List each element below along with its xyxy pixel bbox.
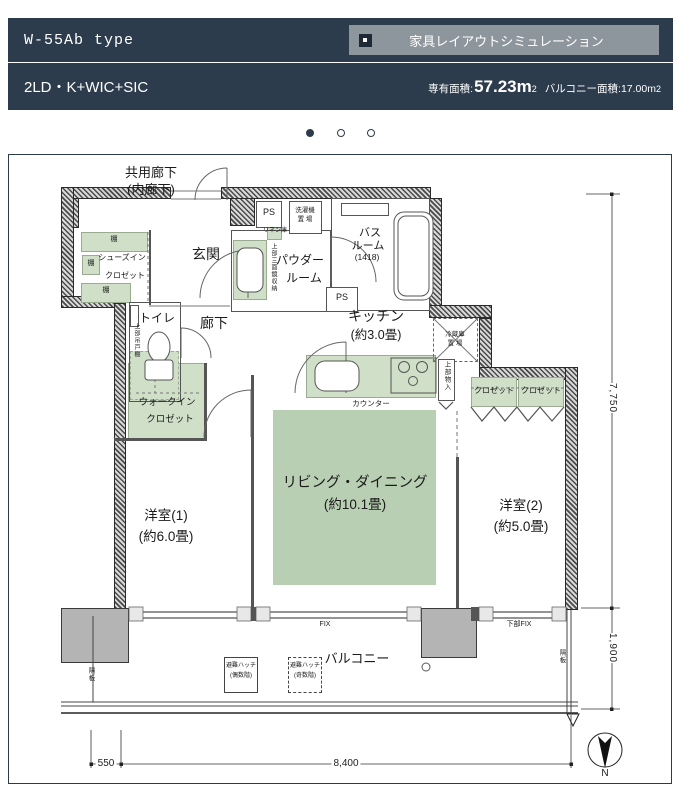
furniture-simulation-button[interactable]: 家具レイアウトシミュレーション [349,25,659,55]
window-bedroom1 [129,612,251,618]
closet-folding-doors [471,407,564,421]
hatch-label: 避難ハッチ [290,663,320,670]
counter-label: カウンター [352,400,390,408]
toilet-shelf-label: 上部吊戸棚 [132,323,141,373]
balcony-edge-lines [61,702,578,706]
compass-circle [588,733,622,767]
room-label-living-dining-size: (約10.1畳) [324,498,386,513]
cursor-click-icon [359,34,372,47]
bath-counter [341,203,389,216]
closet-label: クロゼット [521,387,561,396]
room-label-wic: ウォークイン [138,398,195,408]
room-label-bath-2: ルーム [352,240,385,252]
partition-label: 隔板 [85,667,95,687]
wall [565,367,578,610]
wall [114,438,207,441]
wall [429,305,492,318]
pagination [0,124,681,142]
wall [149,230,151,305]
compass-north-label: N [601,768,608,779]
wall [61,187,74,308]
window-cap [552,607,566,621]
wall [204,363,207,440]
sim-button-label: 家具レイアウトシミュレーション [372,31,659,50]
kitchen-counter [306,355,436,398]
balcony-area-sup: 2 [656,84,661,94]
room-label-powder: パウダー [276,254,324,267]
header: W-55Ab type 家具レイアウトシミュレーション 2LD・K+WIC+SI… [8,18,673,110]
area-label: 専有面積: [428,81,473,96]
window-living [256,612,421,618]
wall [114,303,126,609]
area-sup: 2 [532,84,537,94]
closet-label: クロゼット [474,387,514,396]
room-label-balcony: バルコニー [325,652,390,666]
floor-plan: 共用廊下 (内廊下) 玄関 シューズイン クロゼット 棚 棚 棚 PS 洗濯機 … [8,154,672,784]
triangle-marker [567,714,579,726]
plan-type-title: W-55Ab type [24,32,134,49]
room-label-wic-2: クロゼット [146,415,194,425]
ps-label: PS [336,293,348,303]
laundry-label: 洗濯機 [295,207,315,214]
room-label-common-corridor: 共用廊下 [125,166,177,180]
balcony-area-label: バルコニー面積:17.00m [545,81,656,96]
upper-storage-caret [439,402,453,409]
toilet-door-arc [181,328,211,358]
window-cap [237,607,251,621]
fix-window-label: FIX [320,621,331,629]
room-label-genkan: 玄関 [192,247,220,262]
header-row-1: W-55Ab type 家具レイアウトシミュレーション [8,18,673,62]
room-label-hallway: 廊下 [200,316,228,331]
pagination-dot-2[interactable] [337,129,345,137]
room-label-bedroom2-size: (約5.0畳) [494,520,549,535]
room-label-living-dining: リビング・ダイニング [283,476,428,492]
room-label-powder-2: ルーム [286,272,322,285]
room-label-bedroom1-size: (約6.0畳) [139,530,194,545]
shelf-label: 棚 [103,287,110,295]
wall-stub [251,607,256,621]
ps-label: PS [263,208,275,218]
wall [230,198,255,226]
room-label-bath-size: (1418) [355,253,380,262]
compass-needle [598,736,612,768]
balcony-drain [422,663,430,671]
refrigerator-label: 冷蔵庫 [445,331,465,338]
wall [456,457,459,609]
room-label-bedroom2: 洋室(2) [499,499,543,514]
room-label-shoes-closet: シューズイン [98,254,146,263]
dimension-1900: 1,900 [605,633,620,663]
room-label-kitchen-size: (約3.0畳) [351,329,402,343]
window-cap [129,607,143,621]
window-cap [256,607,270,621]
lower-fix-window-label: 下部FIX [507,621,532,629]
window-bedroom2 [479,612,566,618]
linen-label: リネン庫 [263,228,287,235]
wall [429,198,442,311]
room-label-kitchen: キッチン [348,309,404,324]
layout-type: 2LD・K+WIC+SIC [24,76,148,97]
partition-label: 隔板 [556,649,566,669]
hatch-label: 避難ハッチ [226,663,256,670]
room-label-common-corridor-2: (内廊下) [127,183,175,197]
room-label-toilet: トイレ [139,312,175,325]
upper-storage-label: 上部物入 [441,361,451,399]
concrete-pillar [421,608,477,658]
refrigerator-label-2: 置 場 [448,340,463,347]
area-value: 57.23m [474,77,532,97]
bedroom1-door-arc [204,390,251,437]
concrete-pillar [61,608,129,663]
pagination-dot-3[interactable] [367,129,375,137]
balcony-right-divider [567,610,571,713]
room-label-bath: バス [359,227,381,239]
area-info: 専有面積:57.23m2 バルコニー面積:17.00m2 [428,77,661,97]
window-cap [407,607,421,621]
dimension-7750: 7,750 [605,383,620,413]
hatch-even-label: (偶数階) [230,673,252,680]
shelf-label: 棚 [88,260,95,268]
entrance-threshold [171,191,221,199]
hatch-odd-label: (奇数階) [294,673,316,680]
dimension-8400: 8,400 [331,758,360,769]
shelf-label: 棚 [111,236,118,244]
window-cap [479,607,493,621]
room-label-bedroom1: 洋室(1) [144,509,188,524]
dimension-550: 550 [96,758,117,769]
pagination-dot-1[interactable] [306,129,314,137]
header-row-2: 2LD・K+WIC+SIC 専有面積:57.23m2 バルコニー面積:17.00… [8,63,673,110]
mirror-storage-label: 上部三面鏡収納 [269,243,278,303]
laundry-label-2: 置 場 [298,216,313,223]
room-label-shoes-closet-2: クロゼット [105,272,145,281]
wall [251,375,254,609]
